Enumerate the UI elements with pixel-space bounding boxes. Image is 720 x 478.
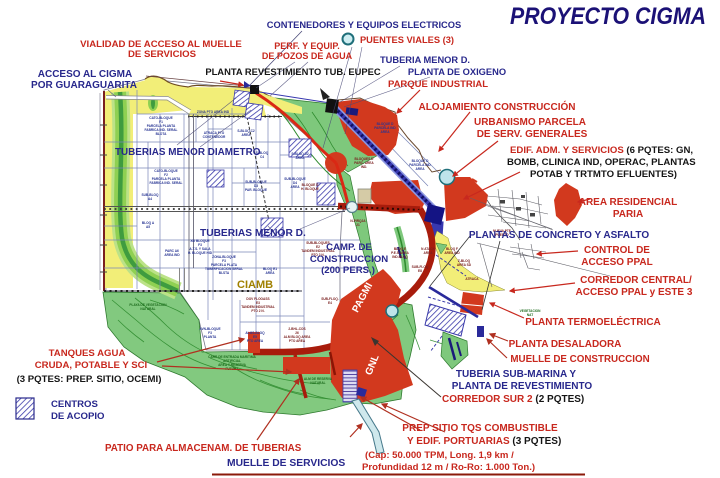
svg-text:(3 PQTES: PREP. SITIO, OCEMI): (3 PQTES: PREP. SITIO, OCEMI)	[17, 374, 162, 385]
svg-text:(Cap: 50.000 TPM, Long. 1,9 km: (Cap: 50.000 TPM, Long. 1,9 km /	[365, 450, 514, 461]
svg-text:Profundidad 12 m / Ro-Ro: 1.00: Profundidad 12 m / Ro-Ro: 1.000 Ton.)	[362, 462, 535, 473]
svg-text:PLANTA REVESTIMIENTO TUB. EUPE: PLANTA REVESTIMIENTO TUB. EUPEC	[205, 66, 381, 77]
svg-text:ACCESO PPAL: ACCESO PPAL	[581, 257, 653, 268]
svg-text:MUELLE DE SERVICIOS: MUELLE DE SERVICIOS	[227, 458, 345, 469]
svg-text:ACCESO PPAL y ESTE 3: ACCESO PPAL y ESTE 3	[576, 287, 693, 298]
svg-text:DE ACOPIO: DE ACOPIO	[51, 411, 105, 422]
svg-text:ATRACA PTOCONTENEDOR: ATRACA PTOCONTENEDOR	[203, 131, 226, 139]
svg-text:CORREDOR SUR 2 (2 PQTES): CORREDOR SUR 2 (2 PQTES)	[442, 394, 584, 405]
svg-text:TANQUES AGUA: TANQUES AGUA	[49, 348, 126, 359]
svg-text:PARC A6AREA IND: PARC A6AREA IND	[164, 249, 180, 257]
svg-text:PUENTES VIALES (3): PUENTES VIALES (3)	[360, 35, 454, 45]
svg-text:ATRACA: ATRACA	[465, 277, 479, 281]
svg-text:PLANTAS DE CONCRETO Y ASFALTO: PLANTAS DE CONCRETO Y ASFALTO	[469, 230, 649, 241]
svg-text:URBANISMO PARCELA: URBANISMO PARCELA	[474, 117, 586, 128]
svg-text:ZONA PTO AREA IND: ZONA PTO AREA IND	[197, 110, 230, 114]
svg-text:ALOJAMIENTO CONSTRUCCIÓN: ALOJAMIENTO CONSTRUCCIÓN	[418, 100, 575, 113]
svg-text:PATIO PARA ALMACENAM. DE TUBER: PATIO PARA ALMACENAM. DE TUBERIAS	[105, 443, 302, 454]
svg-text:DE POZOS DE AGUA: DE POZOS DE AGUA	[262, 51, 353, 61]
svg-text:PLANTA TERMOELÉCTRICA: PLANTA TERMOELÉCTRICA	[525, 315, 661, 328]
svg-text:PLANTA DESALADORA: PLANTA DESALADORA	[509, 339, 622, 350]
svg-text:MUELLE DE CONSTRUCCION: MUELLE DE CONSTRUCCION	[510, 354, 649, 365]
svg-text:CATO-BLOQUEF2PARCELA PLANTAFAB: CATO-BLOQUEF2PARCELA PLANTAFABRICA IND. …	[150, 169, 183, 185]
svg-text:PARIA: PARIA	[613, 209, 643, 220]
svg-text:POTAB Y TRTMTO EFLUENTES): POTAB Y TRTMTO EFLUENTES)	[530, 169, 677, 180]
svg-text:CIAMB: CIAMB	[237, 279, 273, 291]
svg-text:CRUDA, POTABLE Y SCI: CRUDA, POTABLE Y SCI	[35, 360, 148, 371]
svg-text:XIII BLOQUEF3A.T.S. Y SALAH. B: XIII BLOQUEF3A.T.S. Y SALAH. BLOQUE HID	[188, 239, 213, 255]
svg-text:TUBERIAS MENOR D.: TUBERIAS MENOR D.	[200, 228, 306, 239]
svg-text:CONTROL DE: CONTROL DE	[584, 245, 650, 256]
svg-text:DE SERV. GENERALES: DE SERV. GENERALES	[477, 129, 588, 140]
svg-text:BLOQUE DH. BLOQUE: BLOQUE DH. BLOQUE	[301, 183, 319, 191]
svg-text:(200 PERS.): (200 PERS.)	[321, 265, 375, 276]
svg-text:DE SERVICIOS: DE SERVICIOS	[128, 49, 197, 60]
svg-text:PREP SITIO TQS COMBUSTIBLE: PREP SITIO TQS COMBUSTIBLE	[402, 423, 558, 434]
svg-text:CENTROS: CENTROS	[51, 399, 99, 410]
svg-text:BOMB, CLINICA IND, OPERAC, PLA: BOMB, CLINICA IND, OPERAC, PLANTAS	[507, 157, 696, 168]
svg-text:CAMP. DE: CAMP. DE	[326, 242, 372, 253]
svg-text:CONSTRUCCION: CONSTRUCCION	[310, 254, 388, 265]
svg-text:PROYECTO CIGMA: PROYECTO CIGMA	[510, 3, 706, 30]
svg-text:EDIF. ADM. Y SERVICIOS (6 PQTE: EDIF. ADM. Y SERVICIOS (6 PQTES: GN,	[510, 145, 693, 156]
svg-text:POR GUARAGUARITA: POR GUARAGUARITA	[31, 80, 137, 91]
svg-text:CONTENEDORES Y EQUIPOS ELECTRI: CONTENEDORES Y EQUIPOS ELECTRICOS	[267, 20, 461, 30]
svg-text:Y EDIF. PORTUARIAS (3 PQTES): Y EDIF. PORTUARIAS (3 PQTES)	[407, 436, 561, 447]
svg-text:PARQUE INDUSTRIAL: PARQUE INDUSTRIAL	[388, 79, 488, 90]
svg-text:TUBERIA MENOR D.: TUBERIA MENOR D.	[380, 55, 470, 65]
svg-text:CORREDOR CENTRAL/: CORREDOR CENTRAL/	[580, 275, 692, 286]
svg-text:ACCESO AL CIGMA: ACCESO AL CIGMA	[38, 69, 132, 80]
svg-text:AREA RESIDENCIAL: AREA RESIDENCIAL	[579, 197, 678, 208]
svg-text:TUBERIAS MENOR DIAMETRO: TUBERIAS MENOR DIAMETRO	[115, 147, 261, 158]
svg-text:PERF. Y EQUIP.: PERF. Y EQUIP.	[274, 41, 340, 51]
svg-text:PLANTA DE REVESTIMIENTO: PLANTA DE REVESTIMIENTO	[452, 381, 593, 392]
svg-text:Z-BLOQAREA SD: Z-BLOQAREA SD	[457, 259, 472, 267]
svg-text:PLANTA DE OXIGENO: PLANTA DE OXIGENO	[408, 67, 506, 77]
svg-text:TUBERIA SUB-MARINA Y: TUBERIA SUB-MARINA Y	[456, 369, 577, 380]
